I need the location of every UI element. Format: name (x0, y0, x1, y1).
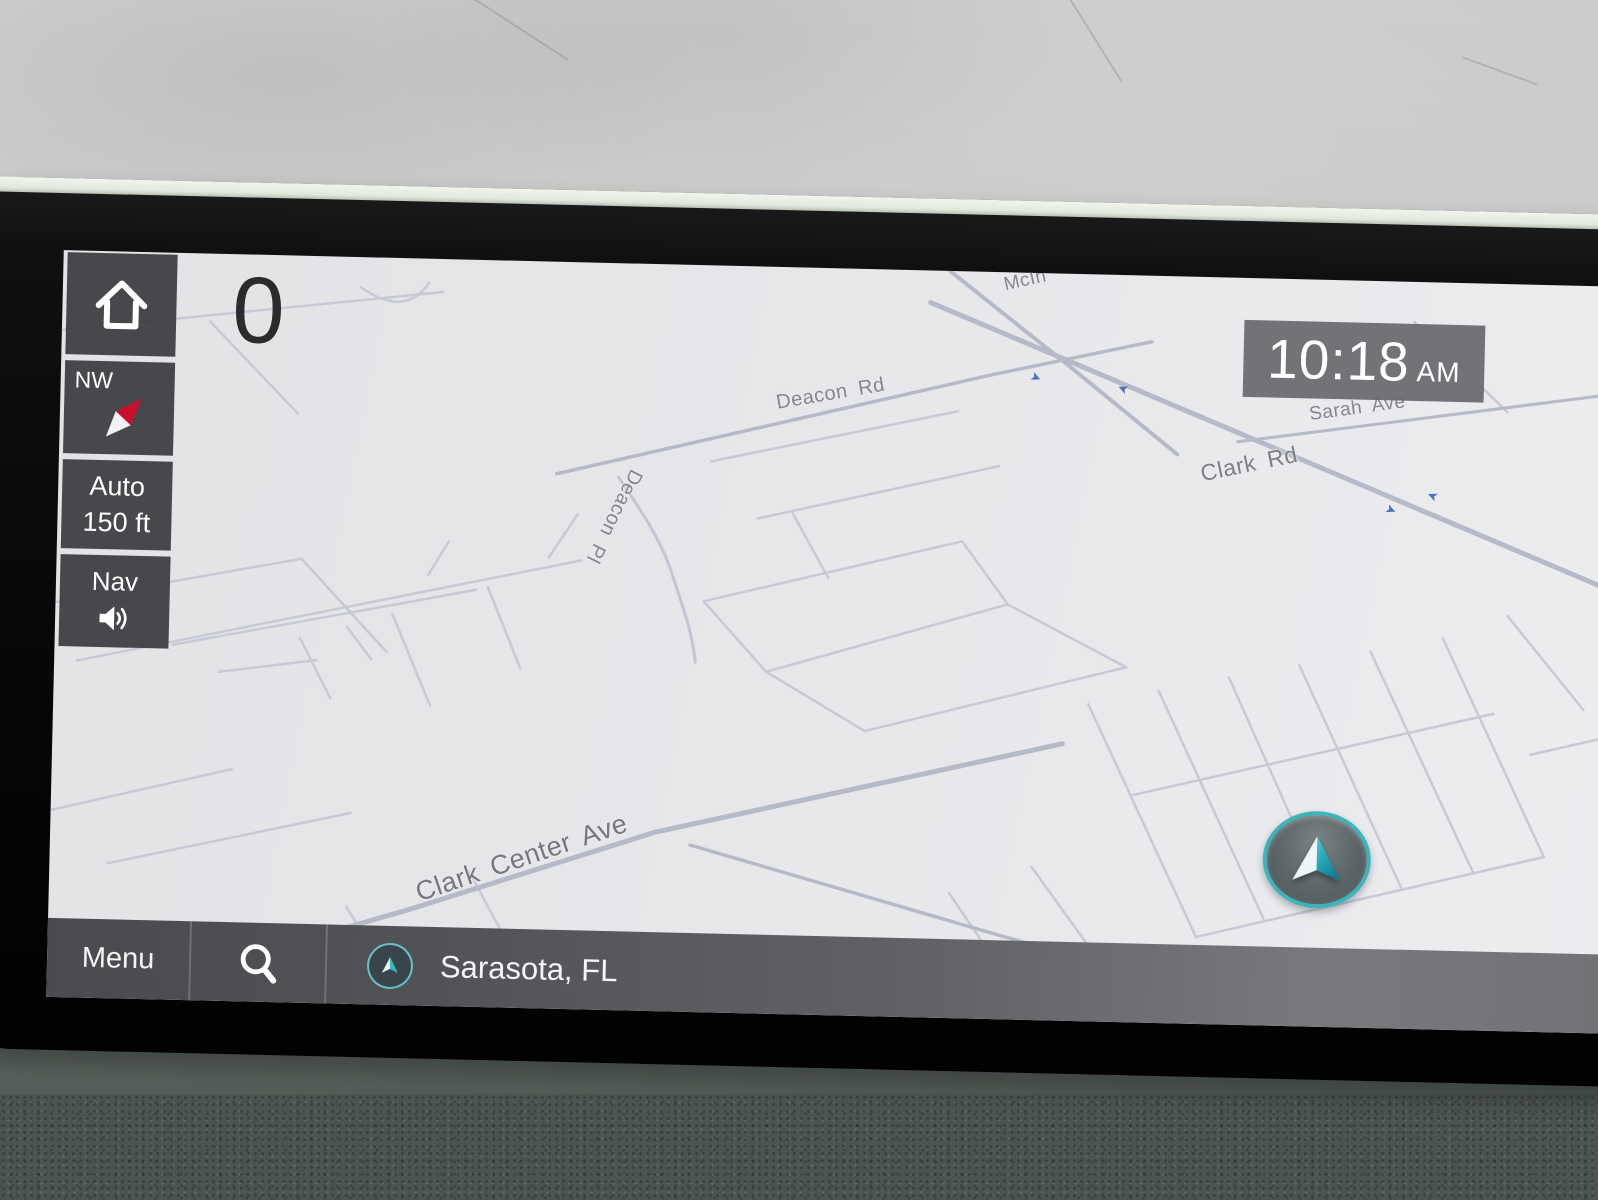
current-location-label: Sarasota, FL (440, 949, 618, 989)
map-scale-button[interactable]: Auto 150 ft (61, 459, 173, 551)
nav-volume-label: Nav (92, 566, 139, 598)
nav-volume-button[interactable]: Nav (58, 554, 170, 649)
volume-icon (91, 600, 138, 637)
search-button[interactable] (190, 921, 326, 1003)
search-icon (234, 938, 283, 987)
navigation-screen: Deacon Rd Deacon Pl McIn Sarah Ave Clark… (46, 250, 1598, 1034)
menu-label: Menu (81, 942, 154, 977)
zoom-mode-label: Auto (89, 469, 145, 505)
compass-button[interactable]: NW (63, 360, 175, 456)
wall-crack (1057, 0, 1122, 82)
compass-heading-label: NW (74, 366, 113, 394)
home-button[interactable] (65, 252, 177, 357)
wall-crack (442, 0, 569, 61)
wall-crack (1462, 56, 1538, 85)
infotainment-display-bezel: Deacon Rd Deacon Pl McIn Sarah Ave Clark… (0, 176, 1598, 1088)
home-icon (90, 274, 153, 335)
dashboard-leather (0, 1094, 1598, 1200)
zoom-scale-label: 150 ft (82, 504, 150, 541)
location-arrow-icon (366, 942, 413, 989)
speed-readout: 0 (231, 256, 286, 365)
menu-button[interactable]: Menu (46, 918, 190, 1000)
clock-time: 10:18 (1266, 320, 1410, 400)
clock-display: 10:18 AM (1243, 320, 1486, 403)
clock-period: AM (1416, 356, 1461, 389)
